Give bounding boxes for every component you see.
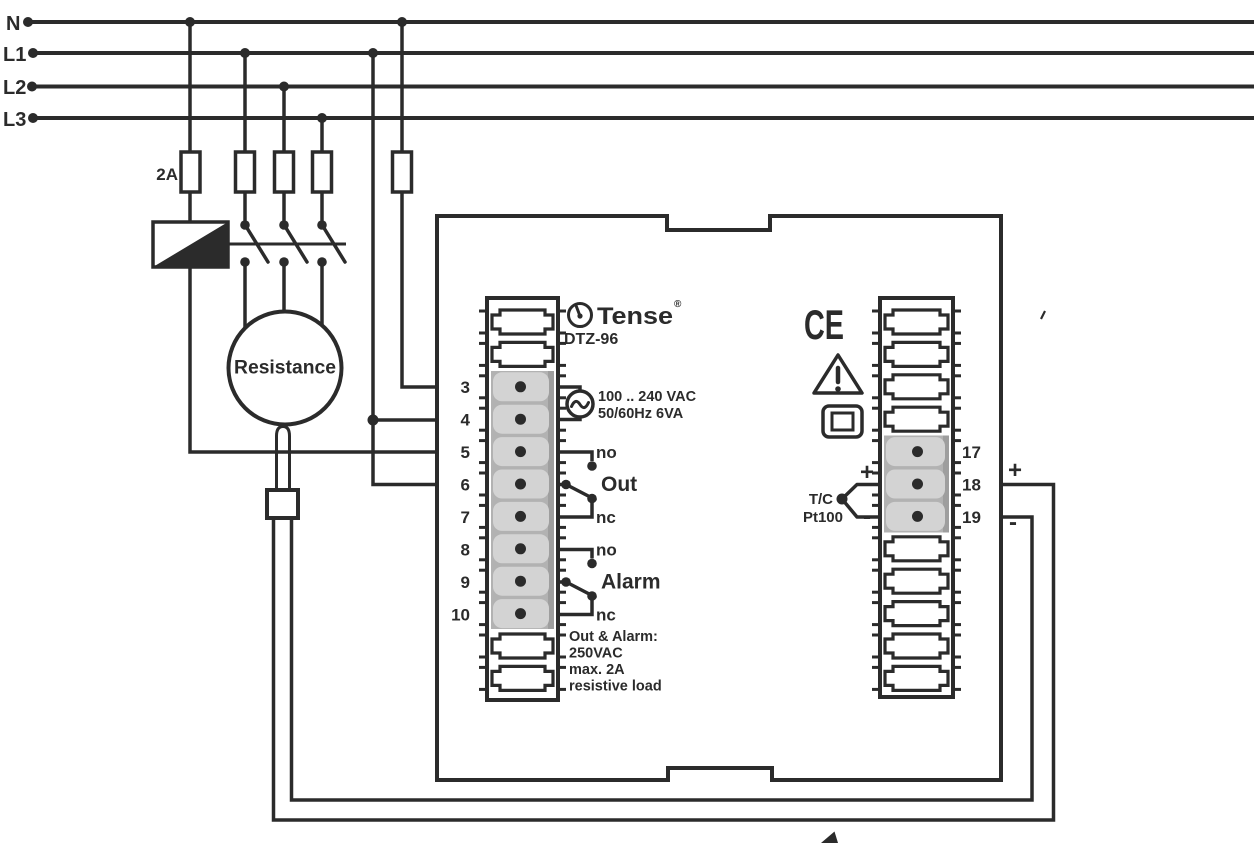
terminal-screw-dot: [912, 511, 923, 522]
rating-line: Out & Alarm:: [569, 629, 658, 645]
terminal-number: 6: [461, 476, 470, 495]
alarm-nc-label: nc: [596, 606, 616, 625]
terminal-number: 17: [962, 443, 981, 462]
fuse-l2: [275, 152, 294, 192]
terminal-screw-dot: [912, 446, 923, 457]
fuse-l1: [236, 152, 255, 192]
rail-l3-label: L3: [3, 109, 26, 131]
out-label: Out: [601, 473, 637, 496]
sensor-probe-sheath: [277, 427, 290, 492]
terminal-number: 18: [962, 476, 981, 495]
out-nc-label: nc: [596, 508, 616, 527]
terminal-housing: [885, 375, 948, 399]
terminal-housing: [492, 310, 553, 334]
wiring-diagram-page: Tense ® DTZ-96 CE 100 .. 240 VAC 50/60Hz…: [0, 0, 1254, 843]
terminal-number: 5: [461, 443, 470, 462]
ce-mark: CE: [804, 301, 844, 348]
sensor-type-tc: T/C: [809, 491, 833, 508]
sensor-plus-label: +: [860, 459, 874, 486]
wiring-diagram: Tense ® DTZ-96 CE 100 .. 240 VAC 50/60Hz…: [0, 0, 1254, 843]
alarm-label: Alarm: [601, 571, 661, 594]
terminal-screw-dot: [912, 479, 923, 490]
terminal-housing: [885, 310, 948, 334]
fuse-supply: [393, 152, 412, 192]
cursor-artifact: [821, 832, 838, 843]
terminal-housing: [885, 634, 948, 658]
terminal-housing: [492, 666, 553, 690]
warning-exclamation-dot: [835, 386, 841, 392]
terminal-number: 7: [461, 508, 470, 527]
rail-l3-endpoint: [28, 113, 38, 123]
n-feeder-wire: [402, 22, 437, 387]
rating-line: resistive load: [569, 679, 662, 695]
terminal-number: 10: [451, 606, 470, 625]
terminal-housing: [885, 602, 948, 626]
alarm-no-label: no: [596, 541, 617, 560]
terminal-number: 9: [461, 573, 470, 592]
terminal-housing: [492, 342, 553, 366]
rail-l1-label: L1: [3, 44, 26, 66]
terminal-screw-dot: [515, 576, 526, 587]
terminal-screw-dot: [515, 446, 526, 457]
fuse-2a: [181, 152, 200, 192]
terminal-screw-dot: [515, 543, 526, 554]
sensor-type-pt100: Pt100: [803, 509, 843, 526]
terminal-screw-dot: [515, 414, 526, 425]
brand-name: Tense: [597, 303, 673, 330]
fuse-l3: [313, 152, 332, 192]
terminal-housing: [885, 569, 948, 593]
rail-n-label: N: [6, 13, 20, 35]
terminal-number: 19: [962, 508, 981, 527]
print-artifact: [1041, 311, 1045, 319]
registered-trademark: ®: [674, 299, 682, 310]
terminal-housing: [885, 407, 948, 431]
terminal-number: 4: [461, 411, 471, 430]
terminal-screw-dot: [515, 381, 526, 392]
terminal-screw-dot: [515, 511, 526, 522]
contactor: [153, 220, 346, 267]
out-no-label: no: [596, 443, 617, 462]
rail-n-endpoint: [23, 17, 33, 27]
external-minus-label: -: [1009, 509, 1017, 536]
terminal-housing: [885, 342, 948, 366]
terminal-housing: [885, 666, 948, 690]
supply-rating-line1: 100 .. 240 VAC: [598, 389, 697, 405]
brand-logo-hub: [577, 313, 582, 318]
external-plus-label: +: [1008, 457, 1022, 484]
terminal-housing: [492, 634, 553, 658]
model-number: DTZ-96: [564, 331, 618, 348]
sensor-minus-label: -: [863, 503, 871, 530]
terminal-number: 3: [461, 378, 470, 397]
supply-rating-line2: 50/60Hz 6VA: [598, 406, 684, 422]
terminal-housing: [885, 537, 948, 561]
sensor-probe-head: [267, 490, 298, 518]
rating-line: 250VAC: [569, 646, 623, 662]
rail-l1-endpoint: [28, 48, 38, 58]
terminal-number: 8: [461, 541, 470, 560]
rail-l2-endpoint: [27, 82, 37, 92]
supply-connection: 100 .. 240 VAC 50/60Hz 6VA: [558, 387, 697, 422]
rail-l2-label: L2: [3, 77, 26, 99]
terminal-screw-dot: [515, 479, 526, 490]
terminal-screw-dot: [515, 608, 526, 619]
heater-label: Resistance: [234, 358, 336, 379]
rating-line: max. 2A: [569, 662, 625, 678]
terminal-band-shade: [548, 371, 554, 629]
fuse-rating-label: 2A: [156, 165, 178, 184]
